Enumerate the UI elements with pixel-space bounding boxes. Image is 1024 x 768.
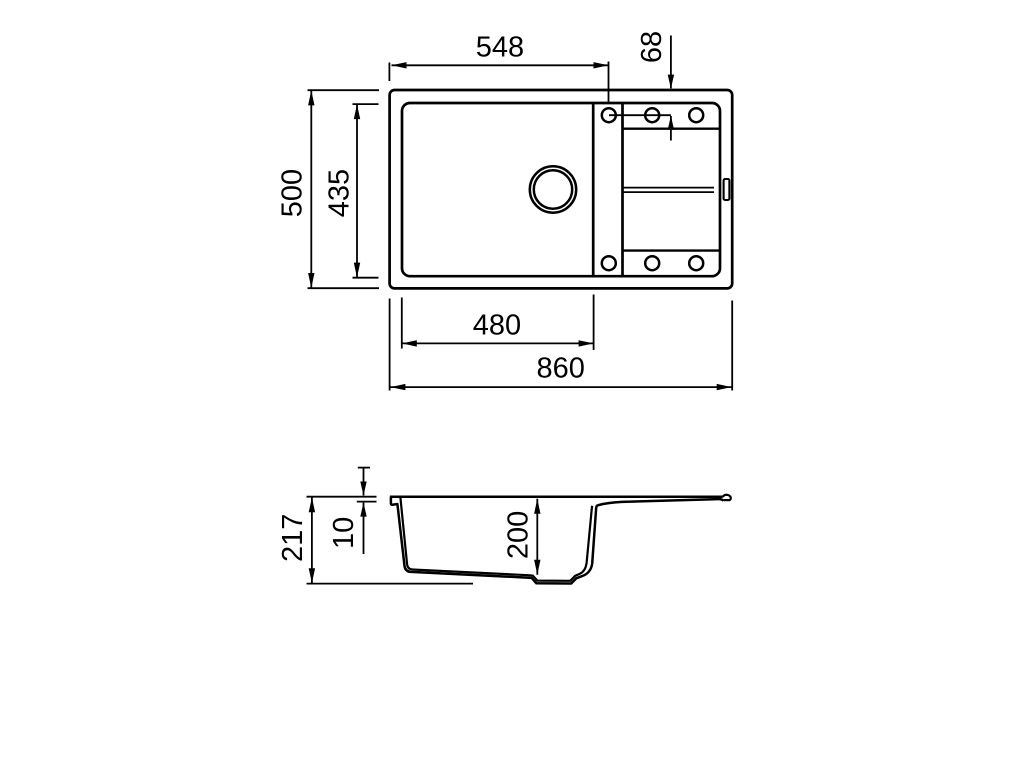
svg-text:68: 68 <box>636 31 668 63</box>
svg-text:200: 200 <box>503 511 535 559</box>
svg-text:548: 548 <box>476 32 524 64</box>
svg-text:10: 10 <box>328 517 360 549</box>
svg-text:480: 480 <box>473 310 521 342</box>
svg-text:435: 435 <box>324 169 356 217</box>
svg-text:860: 860 <box>537 353 585 385</box>
svg-text:500: 500 <box>277 169 309 217</box>
svg-text:217: 217 <box>277 514 309 562</box>
